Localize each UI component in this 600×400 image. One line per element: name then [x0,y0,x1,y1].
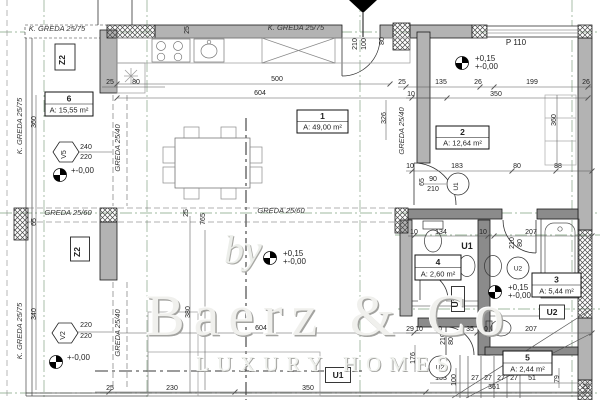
interior-partitions [412,301,540,316]
dimension-label: 340 [31,308,38,320]
dimension-label: P 110 [506,38,527,47]
dimension-label: 350 [302,385,314,392]
dimension-label: 220 [80,154,92,161]
room-area: A: 5,44 m² [539,287,574,296]
elevation-marker-quadrant [456,63,463,70]
shaft-label: Z2 [57,55,67,65]
dimension-label: 350 [490,91,502,98]
beam-label: K. GREDA 25/75 [29,24,86,33]
elevation-marker-quadrant [270,252,277,259]
dimension-label: 35 [466,326,474,333]
shaft-label: U1 [461,241,473,251]
elevation-marker-quadrant [54,175,61,182]
dimension-label: 27 [497,375,505,382]
room-number: 1 [320,111,325,121]
dimension-label: 90 [429,176,437,183]
dimension-label: 326 [381,112,388,124]
shaft-label: U1 [333,370,344,380]
room-number: 4 [436,257,441,267]
dimension-label: 10 [406,163,414,170]
shaft-label: Z2 [72,247,82,257]
dimension-label: 199 [526,79,538,86]
dimension-label: 51 [528,375,536,382]
floor-plan-page: 25210100805006042580P 110251352619926103… [0,0,600,400]
elevation-value: +-0,00 [67,353,90,362]
dimension-label: 240 [80,144,92,151]
shaft-circle-label: U2 [436,365,445,372]
room-area: A: 2,60 m² [421,270,456,279]
elevation-marker-quadrant [264,258,271,265]
dimension-label: 27 [471,375,479,382]
floor-plan-svg: 25210100805006042580P 110251352619926103… [0,0,600,400]
beam-label: GREDA 25/40 [397,107,406,155]
sofa [148,312,320,396]
elevation-marker-quadrant [462,57,469,64]
elevation-marker-quadrant [50,362,57,369]
window [487,26,578,37]
room-number: 2 [460,127,465,137]
dimension-label: 207 [525,229,537,236]
bedroom-wardrobe [545,95,576,165]
dimension-label: 65 [419,178,426,186]
dimension-label: 604 [254,90,266,97]
dimension-label: 100 [361,38,368,50]
beam-label: GREDA 25/60 [257,206,305,215]
elevation-value: +-0,00 [71,166,94,175]
dimension-label: 80 [517,239,524,247]
room-area: A: 12,64 m² [443,139,482,148]
dimension-label: 230 [166,385,178,392]
dimension-label: 765 [200,213,207,225]
room-number: 3 [554,275,559,285]
toilet-1 [423,221,443,229]
dimension-label: 10 [479,229,487,236]
dimension-label: 80 [448,337,455,345]
beam-label: GREDA 25/40 [113,124,122,172]
dimension-label: 10 [415,326,423,333]
elevation-marker-quadrant [495,286,502,293]
shaft-circle-label: U2 [514,266,523,273]
dimension-label: 25 [106,79,114,86]
dimension-label: 220 [80,333,92,340]
grid-axis-lines [0,0,600,400]
beam-label: K. GREDA 25/75 [15,302,24,359]
beam-label: K. GREDA 25/75 [268,23,325,32]
vent-marker-label: V5 [61,150,68,159]
dimension-label: 80 [434,326,442,333]
beam-label: GREDA 25/60 [44,208,92,217]
section-axis-lines [95,118,362,400]
dimension-label: 361 [488,384,500,391]
dimension-label: 210 [427,186,439,193]
dimension-label: 29 [406,326,414,333]
dimension-label: 25 [106,385,114,392]
dimension-label: 183 [451,163,463,170]
dimension-label: 135 [435,79,447,86]
elevation-value: +-0,00 [475,62,498,71]
dimension-label: 210 [509,237,516,249]
dimension-label: 26 [474,79,482,86]
dimension-label: 220 [80,322,92,329]
dining-set [163,127,262,199]
dimension-label: 604 [255,325,267,332]
shaft-label: U2 [450,296,460,307]
dimension-label: 27 [510,375,518,382]
dimension-label: 380 [185,306,192,318]
dimension-label: 500 [271,76,283,83]
dimension-label: 25 [184,26,191,34]
boundary-lines [7,0,592,400]
dimension-label: 80 [132,79,140,86]
dimension-label: 27 [484,375,492,382]
elevation-marker-quadrant [56,356,63,363]
elevation-value: +-0,00 [283,257,306,266]
dimension-label: 100 [451,374,458,386]
dimension-label: 176 [410,352,417,364]
elevation-marker-quadrant [60,169,67,176]
dimension-label: 25 [183,209,190,217]
dimension-label: 26 [582,79,590,86]
room-area: A: 2,44 m² [510,365,545,374]
room-number: 5 [525,353,530,363]
beam-label: K. GREDA 25/75 [15,97,24,154]
dimension-label: 25 [398,79,406,86]
dimension-label: 210 [440,333,447,345]
dimension-label: 80 [513,163,521,170]
room-area: A: 49,00 m² [303,123,342,132]
dimension-label: 25 [582,384,590,391]
room-area: A: 15,55 m² [50,106,89,115]
shaft-label: U2 [547,307,558,317]
dimension-label: 79 [554,375,561,383]
vent-marker-label: V2 [60,331,67,340]
beam-label: GREDA 25/40 [113,309,122,357]
shaft-circle-label: U1 [453,182,460,191]
dimension-label: 10 [410,229,418,236]
kitchen-sink [194,39,224,62]
room-number: 6 [67,94,72,104]
dimension-label: 80 [379,37,386,45]
dimension-label: 10 [407,91,415,98]
walls-gray [100,25,592,380]
dimension-label: 10 [480,326,488,333]
dimension-label: 134 [435,229,447,236]
dimension-label: 210 [352,38,359,50]
dimension-label: 360 [31,116,38,128]
dimension-label: 360 [551,114,558,126]
dimension-label: 88 [554,163,562,170]
dimension-label: 207 [525,326,537,333]
dimension-label: 65 [31,218,38,226]
elevation-value: +-0,00 [508,291,531,300]
